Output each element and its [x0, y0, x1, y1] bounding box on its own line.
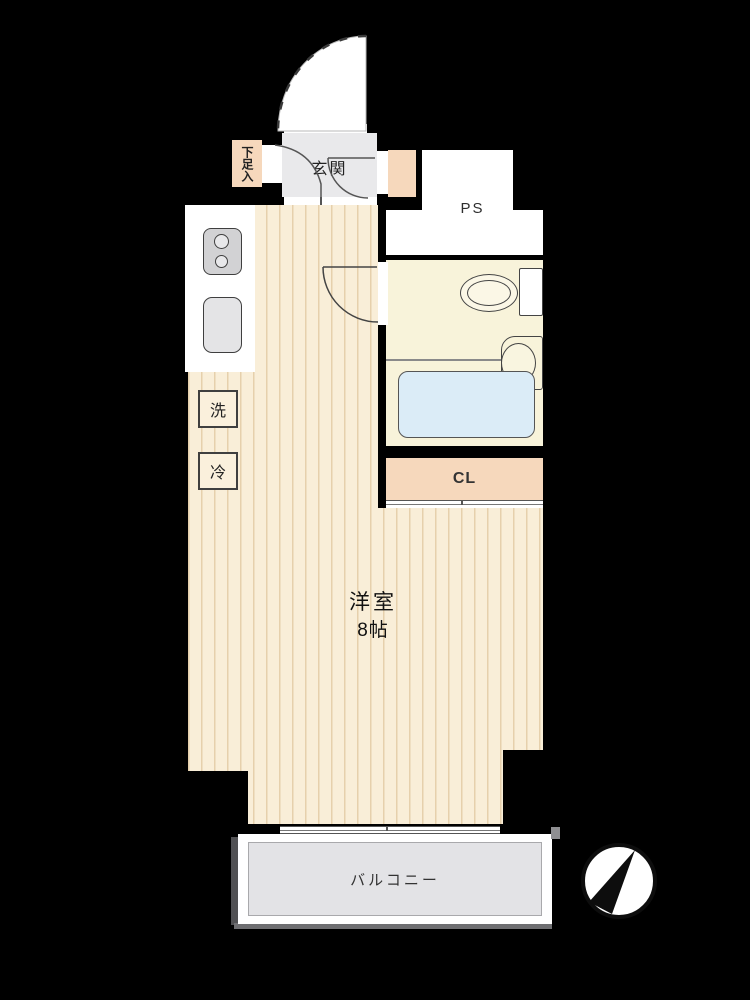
vestibule-right-door-arc — [328, 158, 368, 198]
bathroom-door-arc — [323, 267, 378, 322]
floorplan-canvas: 玄関 下足入 PS CL 洋室 8帖 洗 冷 バルコニー — [0, 0, 750, 1000]
front-door-swing — [278, 36, 366, 131]
vestibule-left-arc — [275, 145, 321, 197]
linework-overlay — [0, 0, 750, 1000]
compass-icon — [583, 845, 655, 917]
